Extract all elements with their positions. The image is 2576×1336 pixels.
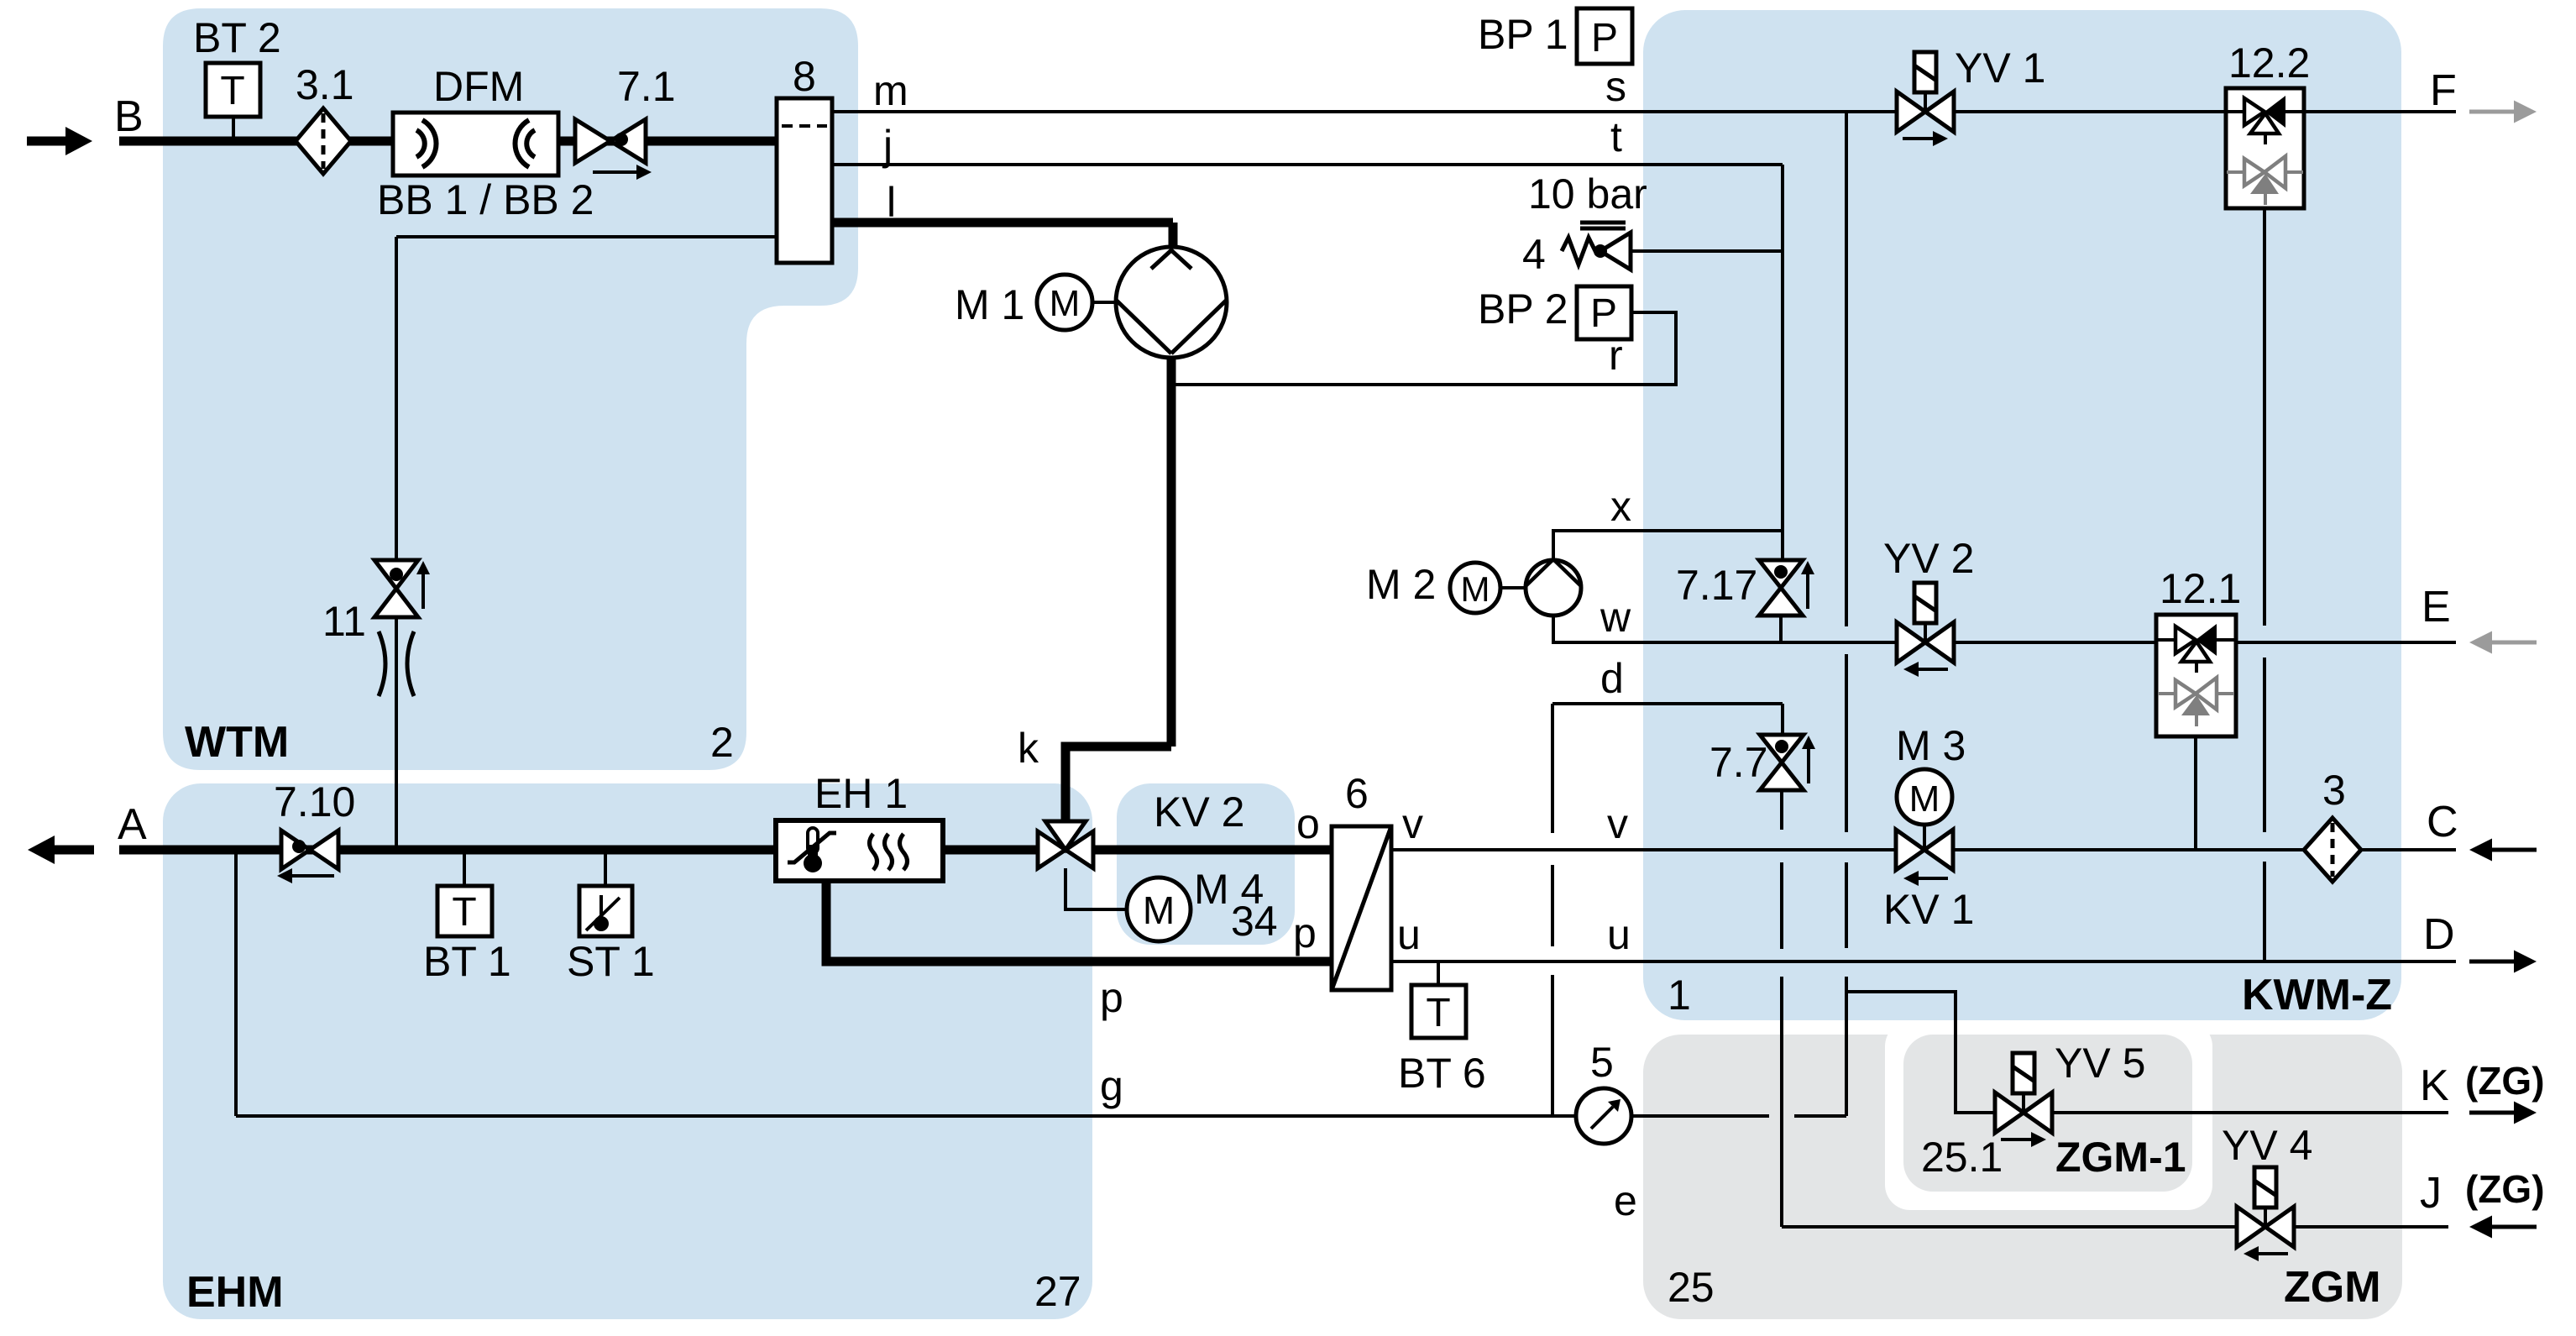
- svg-text:BB 1 / BB 2: BB 1 / BB 2: [377, 176, 594, 223]
- svg-text:p: p: [1293, 909, 1317, 956]
- svg-text:EH 1: EH 1: [814, 770, 908, 817]
- svg-text:u: u: [1397, 911, 1421, 958]
- svg-text:o: o: [1296, 800, 1320, 847]
- svg-text:KV 2: KV 2: [1154, 789, 1244, 836]
- svg-text:j: j: [882, 122, 893, 169]
- svg-text:3.1: 3.1: [296, 61, 354, 108]
- svg-text:t: t: [1610, 113, 1622, 160]
- svg-text:s: s: [1605, 63, 1626, 110]
- svg-text:d: d: [1600, 655, 1624, 702]
- svg-text:u: u: [1607, 911, 1631, 958]
- svg-text:x: x: [1610, 483, 1631, 530]
- svg-text:EHM: EHM: [186, 1268, 284, 1317]
- svg-text:BP 1: BP 1: [1478, 11, 1568, 58]
- svg-text:ST 1: ST 1: [567, 938, 655, 985]
- svg-text:D: D: [2423, 910, 2455, 959]
- svg-text:g: g: [1100, 1062, 1123, 1109]
- svg-text:5: 5: [1590, 1039, 1614, 1086]
- svg-text:12.1: 12.1: [2160, 565, 2241, 612]
- svg-text:3: 3: [2322, 767, 2346, 814]
- svg-text:T: T: [220, 69, 244, 113]
- svg-text:m: m: [873, 67, 908, 114]
- svg-text:T: T: [452, 890, 476, 935]
- svg-text:YV 2: YV 2: [1883, 535, 1974, 582]
- svg-text:E: E: [2422, 583, 2451, 631]
- svg-text:BT 2: BT 2: [193, 14, 281, 61]
- svg-text:K: K: [2420, 1061, 2449, 1110]
- svg-text:M 1: M 1: [955, 281, 1024, 328]
- svg-text:2: 2: [710, 719, 734, 766]
- svg-text:ZGM-1: ZGM-1: [2055, 1134, 2186, 1181]
- svg-text:1: 1: [1668, 972, 1691, 1019]
- svg-text:l: l: [887, 179, 896, 226]
- svg-text:KV 1: KV 1: [1883, 886, 1974, 933]
- svg-text:C: C: [2427, 798, 2458, 846]
- svg-text:25.1: 25.1: [1921, 1134, 2003, 1181]
- svg-text:(ZG): (ZG): [2465, 1059, 2545, 1103]
- svg-text:M 2: M 2: [1366, 561, 1436, 608]
- svg-text:e: e: [1614, 1177, 1637, 1224]
- svg-text:8: 8: [793, 53, 816, 100]
- svg-text:ZGM: ZGM: [2284, 1263, 2381, 1312]
- svg-text:A: A: [118, 800, 147, 849]
- svg-text:M: M: [1909, 778, 1940, 820]
- svg-text:J: J: [2420, 1169, 2442, 1218]
- svg-text:F: F: [2430, 66, 2457, 115]
- svg-text:p: p: [1100, 974, 1123, 1021]
- svg-text:BP 2: BP 2: [1478, 286, 1568, 333]
- svg-text:27: 27: [1034, 1268, 1081, 1315]
- svg-text:M 3: M 3: [1896, 722, 1966, 769]
- svg-text:4: 4: [1522, 231, 1546, 278]
- svg-text:7.17: 7.17: [1676, 562, 1757, 609]
- svg-text:7.1: 7.1: [617, 63, 676, 110]
- svg-text:7.10: 7.10: [274, 778, 355, 825]
- svg-text:KWM-Z: KWM-Z: [2242, 971, 2392, 1019]
- svg-text:M: M: [1461, 569, 1490, 609]
- svg-text:BT 1: BT 1: [423, 938, 511, 985]
- svg-text:YV 1: YV 1: [1955, 45, 2045, 92]
- svg-text:12.2: 12.2: [2228, 39, 2310, 86]
- svg-text:7.7: 7.7: [1709, 739, 1768, 786]
- svg-text:v: v: [1607, 800, 1628, 847]
- svg-text:YV 4: YV 4: [2222, 1122, 2312, 1169]
- svg-text:BT 6: BT 6: [1398, 1050, 1486, 1097]
- svg-text:11: 11: [322, 598, 366, 645]
- svg-text:25: 25: [1668, 1264, 1715, 1311]
- svg-text:v: v: [1402, 800, 1423, 847]
- svg-text:B: B: [114, 92, 144, 141]
- svg-text:P: P: [1590, 291, 1617, 336]
- svg-text:6: 6: [1345, 770, 1369, 817]
- svg-text:DFM: DFM: [433, 63, 524, 110]
- svg-text:34: 34: [1231, 898, 1278, 945]
- svg-text:WTM: WTM: [185, 718, 289, 767]
- svg-text:YV 5: YV 5: [2055, 1040, 2145, 1087]
- svg-text:T: T: [1426, 991, 1450, 1035]
- svg-text:10 bar: 10 bar: [1528, 170, 1647, 217]
- svg-text:w: w: [1600, 594, 1631, 641]
- svg-text:k: k: [1018, 725, 1039, 772]
- svg-text:P: P: [1591, 16, 1618, 60]
- svg-text:M: M: [1143, 888, 1175, 932]
- svg-text:M: M: [1050, 283, 1081, 324]
- svg-text:(ZG): (ZG): [2465, 1167, 2545, 1211]
